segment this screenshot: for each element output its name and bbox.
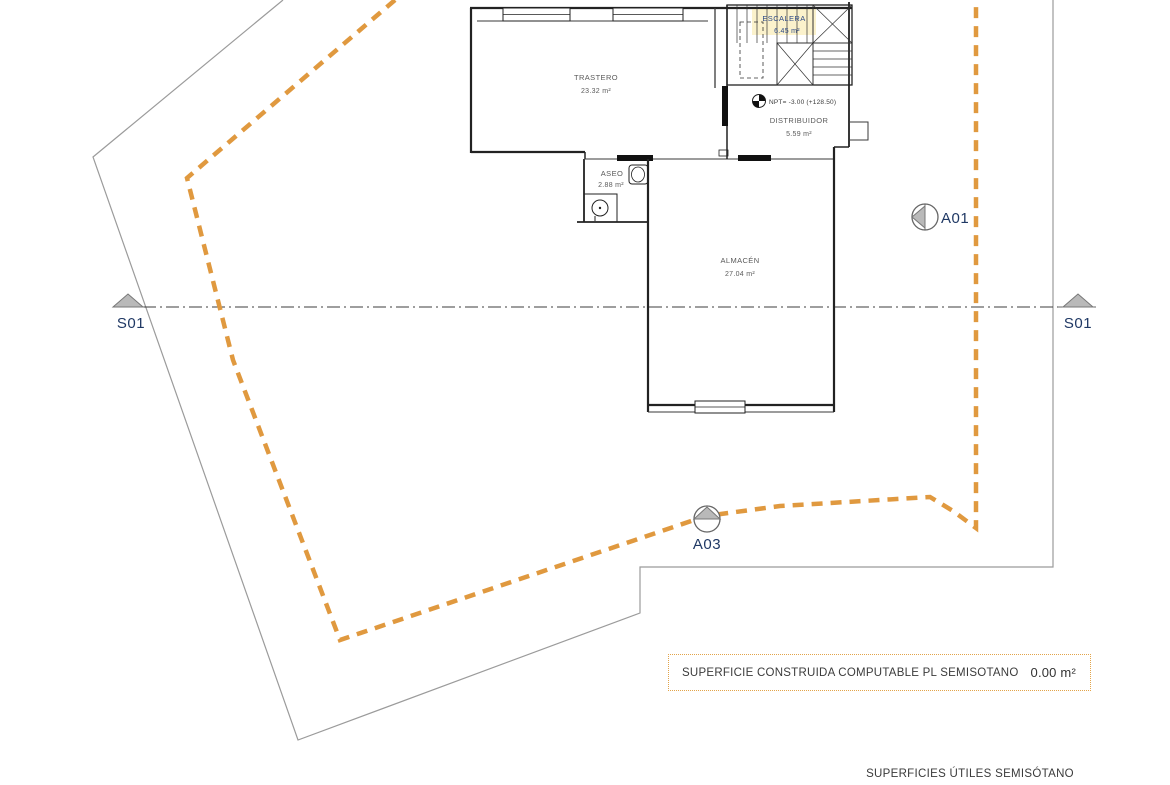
section-marker-right: S01 bbox=[1058, 294, 1096, 332]
computed-area-box: SUPERFICIE CONSTRUIDA COMPUTABLE PL SEMI… bbox=[668, 654, 1091, 691]
building-plan bbox=[470, 2, 868, 413]
section-marker-left-label: S01 bbox=[117, 315, 145, 332]
computed-area-value: 0.00 m² bbox=[1031, 665, 1076, 680]
room-area-aseo: 2.88 m² bbox=[598, 182, 624, 189]
room-label-escalera: ESCALERA bbox=[762, 14, 805, 23]
stair-handrail-post bbox=[722, 86, 728, 126]
room-area-distribuidor: 5.59 m² bbox=[786, 131, 812, 138]
section-marker-right-label: S01 bbox=[1064, 315, 1092, 332]
room-area-trastero: 23.32 m² bbox=[581, 88, 611, 95]
elevation-marker-a01-label: A01 bbox=[941, 210, 969, 227]
room-label-aseo: ASEO bbox=[601, 169, 623, 178]
level-mark-text: NPT= -3.00 (+128.50) bbox=[769, 99, 836, 106]
door-leaf-2 bbox=[738, 155, 771, 161]
wall-right-bump bbox=[849, 122, 868, 140]
sink bbox=[629, 165, 648, 184]
window-bottom bbox=[695, 401, 745, 413]
room-area-almacen: 27.04 m² bbox=[725, 271, 755, 278]
room-label-distribuidor: DISTRIBUIDOR bbox=[770, 116, 829, 125]
useful-areas-title: SUPERFICIES ÚTILES SEMISÓTANO bbox=[830, 768, 1110, 780]
plot-boundary-line bbox=[93, 0, 1053, 740]
window-top-1 bbox=[503, 8, 570, 21]
room-label-trastero: TRASTERO bbox=[574, 73, 618, 82]
window-top-2 bbox=[613, 8, 683, 21]
section-marker-left: S01 bbox=[113, 294, 145, 332]
room-label-almacen: ALMACÉN bbox=[720, 256, 759, 265]
computed-area-label: SUPERFICIE CONSTRUIDA COMPUTABLE PL SEMI… bbox=[682, 667, 1019, 679]
shower-tray bbox=[584, 194, 617, 222]
level-mark-symbol bbox=[753, 95, 766, 108]
elevation-marker-a03-label: A03 bbox=[693, 536, 721, 553]
floor-plan-sheet: S01 S01 A01 A03 NPT= -3.00 (+128.50) T bbox=[0, 0, 1170, 785]
elevation-marker-a01: A01 bbox=[912, 204, 969, 230]
room-area-escalera: 6.45 m² bbox=[774, 28, 800, 35]
setback-boundary-dashed bbox=[187, 0, 976, 640]
elevation-marker-a03: A03 bbox=[693, 506, 721, 553]
